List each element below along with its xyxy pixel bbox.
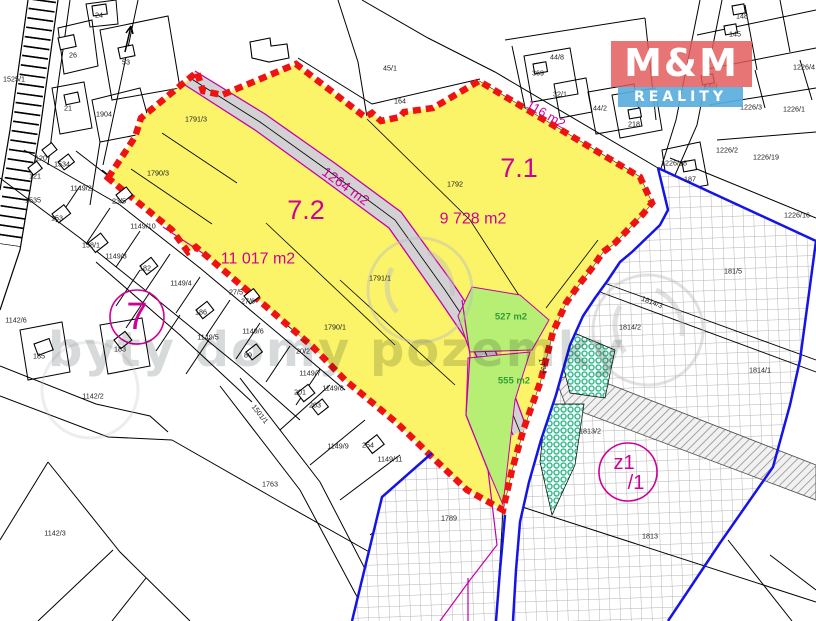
parcel-number-label: 186 [195, 308, 207, 317]
parcel-number-label: 44/2 [593, 104, 607, 113]
parcel-number-label: 27/5 [229, 288, 243, 297]
area-measure-label: 7.1 [500, 153, 538, 183]
parcel-number-label: 1142/6 [5, 316, 26, 325]
parcel-number-label: 148 [736, 12, 748, 21]
parcel-number-label: 24 [95, 11, 103, 20]
parcel-number-label: 1149/11 [378, 455, 403, 464]
parcel-number-label: 185 [33, 352, 45, 361]
area-measure-label: 9 728 m2 [440, 211, 507, 228]
parcel-number-label: 1149/10 [130, 222, 155, 231]
parcel-number-label: 203 [309, 401, 321, 410]
green-area-label: 555 m2 [498, 376, 530, 387]
area-measure-label: 11 017 m2 [221, 251, 296, 268]
green-area-label: 527 m2 [495, 312, 527, 323]
parcel-number-label: 1149/5 [197, 333, 218, 342]
parcel-number-label: 164 [394, 97, 406, 106]
parcel-number-label: 1226/1 [783, 105, 805, 114]
parcel-number-label: 121 [29, 172, 41, 181]
parcel-number-label: 45/1 [383, 64, 397, 73]
parcel-number-label: 1142/2 [82, 392, 103, 401]
parcel-number-label: 1763 [262, 480, 278, 489]
parcel-number-label: 21 [64, 104, 72, 113]
parcel-number-label: 89 [244, 351, 252, 360]
cadastral-map-image: 7z1/1 1525/12426532119041201534121153511… [0, 0, 816, 621]
parcel-number-label: 53 [122, 58, 130, 67]
parcel-number-label: 1535 [25, 196, 41, 205]
parcel-number-label: 1792 [447, 180, 463, 189]
parcel-number-label: 1149/6 [242, 327, 263, 336]
parcel-number-label: 32/1 [553, 90, 567, 99]
parcel-number-label: 1149/8 [322, 384, 343, 393]
parcel-number-label: 153 [51, 214, 63, 223]
parcel-number-label: 1226/16 [784, 211, 810, 220]
map-canvas: 7z1/1 1525/12426532119041201534121153511… [0, 0, 816, 621]
parcel-number-label: 1149/3 [105, 252, 126, 261]
parcel-number-label: 145 [729, 30, 741, 39]
parcel-number-label: 1226/3 [740, 103, 762, 112]
parcel-number-label: 254 [362, 441, 374, 450]
parcel-number-label: 1149/4 [170, 279, 191, 288]
parcel-number-label: 20/2 [296, 347, 310, 356]
parcel-number-label: 14/4 [704, 82, 718, 91]
parcel-number-label: 1814/1 [749, 366, 771, 375]
parcel-number-label: 1789 [441, 514, 457, 523]
parcel-number-label: 158/1 [82, 241, 100, 250]
parcel-number-label: 201 [294, 388, 306, 397]
parcel-number-label: 1791/3 [185, 115, 207, 124]
parcel-number-label: 1790/1 [324, 323, 346, 332]
parcel-number-label: 1813/2 [579, 427, 601, 436]
parcel-number-label: 181/5 [724, 267, 742, 276]
parcel-number-label: 1813 [642, 532, 658, 541]
parcel-number-label: 1226/18 [661, 159, 687, 168]
parcel-number-label: 182 [139, 264, 151, 273]
parcel-number-label: 1226/19 [753, 153, 779, 162]
parcel-number-label: 1149/2 [70, 184, 91, 193]
parcel-number-label: 369 [532, 69, 544, 78]
parcel-number-label: 1149/9 [327, 442, 348, 451]
parcel-number-label: 187 [684, 175, 696, 184]
parcel-number-label: 1149/7 [299, 369, 320, 378]
parcel-number-label: 1226/4 [793, 63, 815, 72]
parcel-number-label: 1814/2 [619, 323, 641, 332]
parcel-number-label: 1904 [96, 110, 112, 119]
parcel-number-label: 218 [628, 120, 640, 129]
parcel-number-label: 120 [35, 154, 47, 163]
parcel-number-label: 1226/2 [716, 146, 738, 155]
parcel-number-label: 44/8 [550, 53, 564, 62]
parcel-number-label: 26 [69, 51, 77, 60]
zone-ring-label: 7 [126, 296, 147, 338]
parcel-number-label: 27/6 [241, 297, 255, 306]
parcel-number-label: 1525/1 [3, 75, 25, 84]
parcel-number-label: 23/5 [112, 197, 126, 206]
parcel-number-label: 1142/3 [44, 529, 65, 538]
parcel-number-label: 1790/3 [147, 169, 169, 178]
area-measure-label: 7.2 [287, 195, 325, 225]
parcel-number-label: 183 [114, 345, 126, 354]
parcel-number-label: 1791/1 [369, 274, 391, 283]
parcel-number-label: 1534 [54, 160, 70, 169]
